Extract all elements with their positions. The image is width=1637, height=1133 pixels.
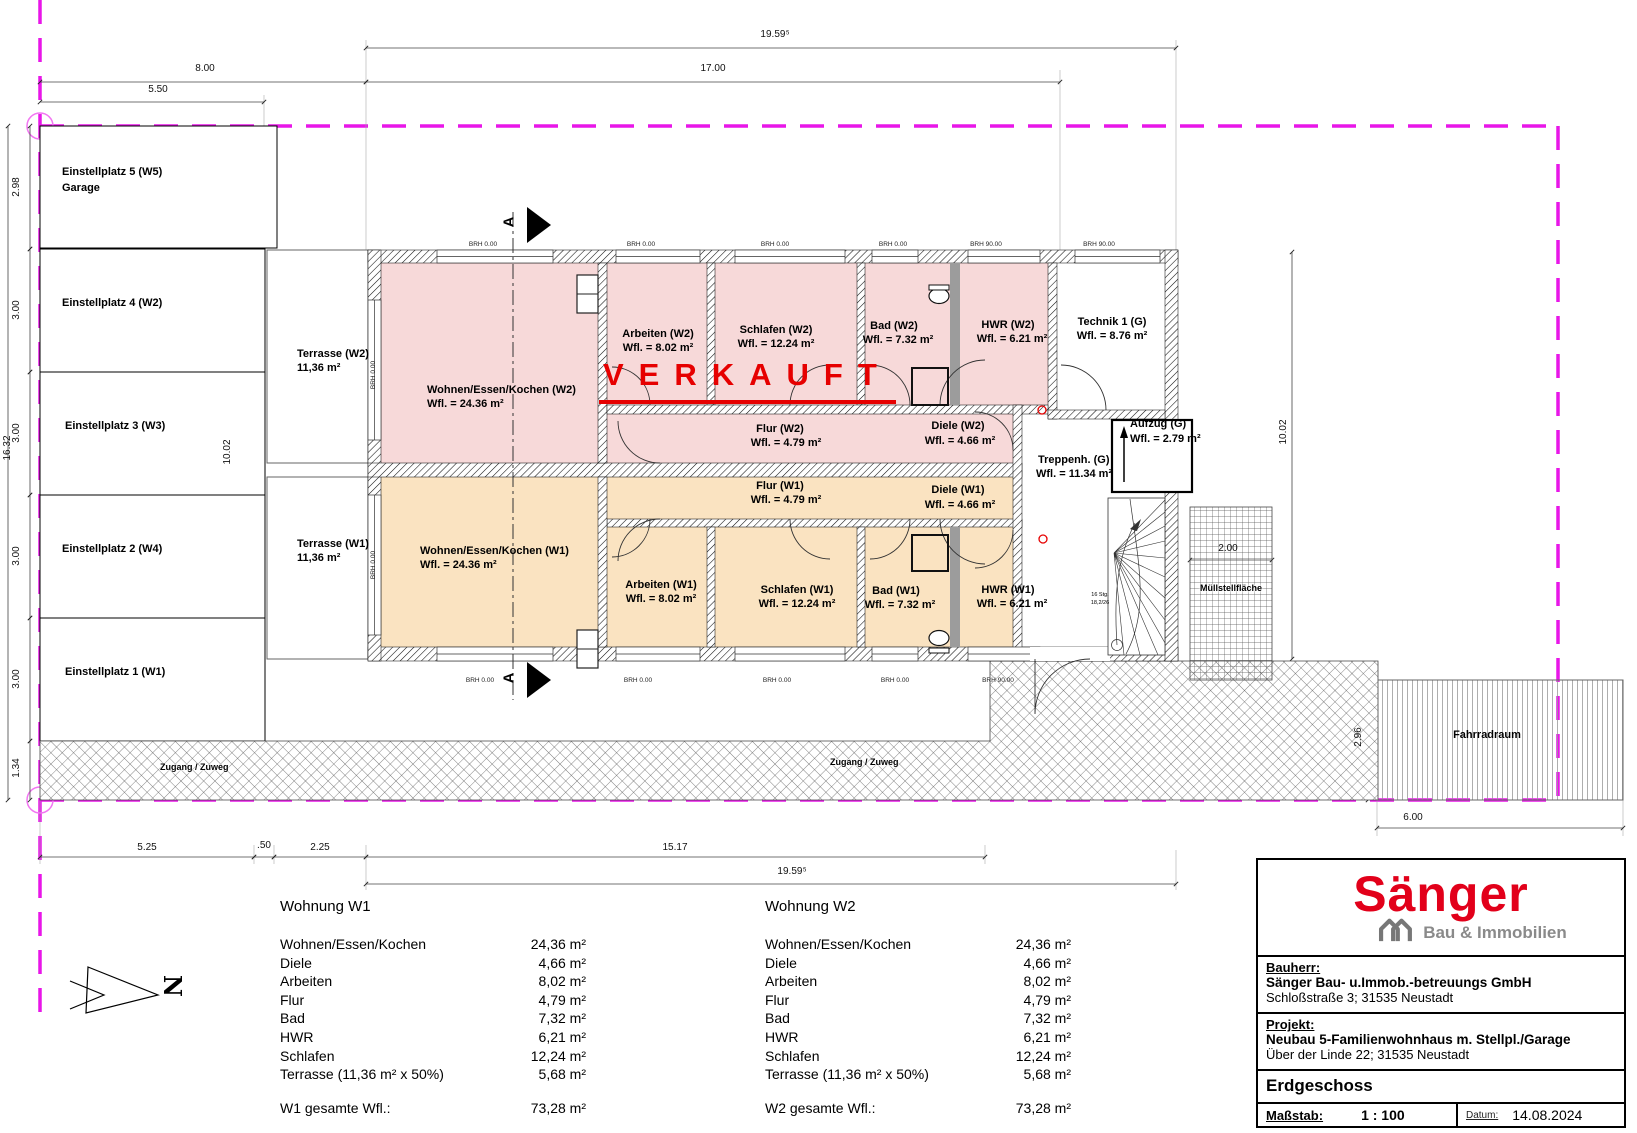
label-annotations-brh0: BRH 0.00: [469, 242, 497, 249]
table-row: Flur4,79 m²: [280, 992, 586, 1011]
table-row: Bad7,32 m²: [280, 1010, 586, 1029]
scale-cell: Maßstab: 1 : 100: [1258, 1104, 1456, 1126]
row-value: 24,36 m²: [1016, 936, 1071, 955]
toilet-w2: [929, 289, 949, 304]
row-value: 6,21 m²: [539, 1029, 586, 1048]
row-label: Schlafen: [280, 1048, 334, 1067]
row-value: 7,32 m²: [1024, 1010, 1071, 1029]
label-annotations-brh90: BRH 90.00: [970, 242, 1002, 249]
row-label: HWR: [280, 1029, 313, 1048]
label-annotations-section: A: [502, 673, 517, 684]
label-dims-d1002: 10.02: [223, 439, 233, 464]
titleblock: Sänger Bau & Immobilien Bauherr: Sänger …: [1256, 858, 1626, 1128]
date-label: Datum:: [1466, 1110, 1498, 1121]
label-dims-d17: 17.00: [700, 64, 725, 74]
label-rooms-aufzug-area: Wfl. = 2.79 m²: [1130, 434, 1201, 445]
label-dims-d1959: 19.59⁵: [760, 30, 789, 40]
total-value: 73,28 m²: [531, 1100, 586, 1116]
label-rooms-flur_w2-area: Wfl. = 4.79 m²: [751, 438, 822, 449]
row-value: 4,79 m²: [1024, 992, 1071, 1011]
row-value: 24,36 m²: [531, 936, 586, 955]
total-label: W1 gesamte Wfl.:: [280, 1100, 390, 1116]
label-rooms-schlafen_w2-name: Schlafen (W2): [740, 325, 813, 336]
label-site-walkway2: Zugang / Zuweg: [830, 758, 899, 767]
label-dims-d134: 1.34: [12, 758, 22, 777]
row-value: 5,68 m²: [1024, 1066, 1071, 1085]
row-value: 8,02 m²: [539, 973, 586, 992]
label-annotations-brh90: BRH 90.00: [1083, 242, 1115, 249]
titleblock-projekt: Projekt: Neubau 5-Familienwohnhaus m. St…: [1258, 1012, 1624, 1069]
label-dims-d525: 5.25: [137, 843, 156, 853]
label-dims-d550: 5.50: [148, 85, 167, 95]
row-label: Flur: [280, 992, 304, 1011]
table-total-row: W2 gesamte Wfl.:73,28 m²: [765, 1100, 1071, 1116]
label-annotations-brh0: BRH 0.00: [881, 678, 909, 685]
row-label: Terrasse (11,36 m² x 50%): [765, 1066, 929, 1085]
table-row: Diele4,66 m²: [765, 955, 1071, 974]
projekt-name: Neubau 5-Familienwohnhaus m. Stellpl./Ga…: [1266, 1032, 1616, 1047]
table-title-w1: Wohnung W1: [280, 898, 586, 915]
section-marker-top: [527, 207, 551, 243]
row-label: Arbeiten: [765, 973, 817, 992]
row-label: Wohnen/Essen/Kochen: [280, 936, 426, 955]
label-site-stalls-2-line1: Einstellplatz 3 (W3): [65, 421, 165, 432]
label-rooms-diele_w1-name: Diele (W1): [931, 485, 984, 496]
terraces: [267, 250, 368, 659]
label-site-walkway1: Zugang / Zuweg: [160, 763, 229, 772]
table-title-w2: Wohnung W2: [765, 898, 1071, 915]
label-dims-d296: 2.96: [1354, 727, 1364, 746]
date-cell: Datum: 14.08.2024: [1456, 1104, 1624, 1126]
label-annotations-brh0: BRH 0.00: [763, 678, 791, 685]
label-annotations-brh0: BRH 0.00: [371, 551, 378, 579]
section-marker-bottom: [527, 662, 551, 698]
label-rooms-schlafen_w1-name: Schlafen (W1): [761, 585, 834, 596]
logo-text: Sänger: [1353, 872, 1529, 917]
bauherr-name: Sänger Bau- u.Immob.-betreuungs GmbH: [1266, 975, 1616, 990]
bauherr-label: Bauherr:: [1266, 960, 1616, 975]
row-label: Wohnen/Essen/Kochen: [765, 936, 911, 955]
label-annotations-brh0: BRH 0.00: [879, 242, 907, 249]
table-wohnung-w1: Wohnung W1Wohnen/Essen/Kochen24,36 m²Die…: [280, 898, 586, 1116]
titleblock-bauherr: Bauherr: Sänger Bau- u.Immob.-betreuungs…: [1258, 955, 1624, 1012]
company-logo: Sänger Bau & Immobilien: [1258, 860, 1624, 955]
label-rooms-arbeiten_w1-area: Wfl. = 8.02 m²: [626, 594, 697, 605]
floor-title: Erdgeschoss: [1258, 1069, 1624, 1102]
label-rooms-terrasse_w2-area: 11,36 m²: [297, 363, 340, 374]
label-dims-d225: 2.25: [310, 843, 329, 853]
table-row: Diele4,66 m²: [280, 955, 586, 974]
row-value: 4,66 m²: [539, 955, 586, 974]
label-rooms-diele_w2-area: Wfl. = 4.66 m²: [925, 436, 996, 447]
label-rooms-terrasse_w2-name: Terrasse (W2): [297, 349, 369, 360]
elevator-shaft: [1112, 420, 1192, 492]
label-rooms-diele_w1-area: Wfl. = 4.66 m²: [925, 500, 996, 511]
row-value: 4,66 m²: [1024, 955, 1071, 974]
date-value: 14.08.2024: [1512, 1107, 1582, 1123]
label-site-north_label: N: [160, 975, 184, 997]
table-row: HWR6,21 m²: [280, 1029, 586, 1048]
label-rooms-treppenhaus-name: Treppenh. (G): [1038, 455, 1110, 466]
label-rooms-wek_w2-name: Wohnen/Essen/Kochen (W2): [427, 385, 576, 396]
table-row: Arbeiten8,02 m²: [765, 973, 1071, 992]
verkauft-stamp: VERKAUFT: [599, 357, 896, 404]
label-site-stalls-3-line1: Einstellplatz 2 (W4): [62, 544, 162, 555]
row-value: 7,32 m²: [539, 1010, 586, 1029]
table-row: HWR6,21 m²: [765, 1029, 1071, 1048]
total-value: 73,28 m²: [1016, 1100, 1071, 1116]
row-value: 12,24 m²: [531, 1048, 586, 1067]
scale-label: Maßstab:: [1266, 1108, 1323, 1123]
label-rooms-hwr_w2-name: HWR (W2): [981, 320, 1034, 331]
row-value: 12,24 m²: [1016, 1048, 1071, 1067]
table-row: Bad7,32 m²: [765, 1010, 1071, 1029]
label-rooms-bad_w1-name: Bad (W1): [872, 586, 920, 597]
label-rooms-hwr_w2-area: Wfl. = 6.21 m²: [977, 334, 1048, 345]
row-value: 6,21 m²: [1024, 1029, 1071, 1048]
row-value: 8,02 m²: [1024, 973, 1071, 992]
label-annotations-brh0: BRH 0.00: [371, 361, 378, 389]
table-row: Flur4,79 m²: [765, 992, 1071, 1011]
label-rooms-wek_w1-area: Wfl. = 24.36 m²: [420, 560, 497, 571]
label-site-muell: Müllstellfläche: [1200, 584, 1262, 593]
label-rooms-bad_w2-area: Wfl. = 7.32 m²: [863, 335, 934, 346]
table-row: Schlafen12,24 m²: [765, 1048, 1071, 1067]
label-dims-d300: 3.00: [12, 300, 22, 319]
label-annotations-brh0: BRH 0.00: [624, 678, 652, 685]
label-rooms-bad_w1-area: Wfl. = 7.32 m²: [865, 600, 936, 611]
label-annotations-stair2: 18,2/26: [1091, 601, 1109, 607]
label-rooms-arbeiten_w2-name: Arbeiten (W2): [622, 329, 694, 340]
label-annotations-brh0: BRH 0.00: [627, 242, 655, 249]
label-rooms-arbeiten_w1-name: Arbeiten (W1): [625, 580, 697, 591]
north-arrow-icon: [70, 967, 158, 1013]
bauherr-address: Schloßstraße 3; 31535 Neustadt: [1266, 990, 1616, 1005]
label-site-stalls-4-line1: Einstellplatz 1 (W1): [65, 667, 165, 678]
label-site-fahrrad: Fahrradraum: [1453, 730, 1521, 741]
label-dims-d200: 2.00: [1218, 544, 1237, 554]
label-rooms-schlafen_w2-area: Wfl. = 12.24 m²: [738, 339, 815, 350]
label-dims-d298: 2.98: [12, 177, 22, 196]
label-rooms-hwr_w1-name: HWR (W1): [981, 585, 1034, 596]
scale-value: 1 : 100: [1361, 1107, 1405, 1123]
floorplan-page: .dl{stroke:#444;stroke-width:.8;marker-s…: [0, 0, 1637, 1133]
label-annotations-brh0: BRH 0.00: [761, 242, 789, 249]
projekt-label: Projekt:: [1266, 1017, 1616, 1032]
table-wohnung-w2: Wohnung W2Wohnen/Essen/Kochen24,36 m²Die…: [765, 898, 1071, 1116]
label-rooms-wek_w2-area: Wfl. = 24.36 m²: [427, 399, 504, 410]
row-label: Bad: [765, 1010, 790, 1029]
table-total-row: W1 gesamte Wfl.:73,28 m²: [280, 1100, 586, 1116]
label-rooms-terrasse_w1-area: 11,36 m²: [297, 553, 340, 564]
label-rooms-schlafen_w1-area: Wfl. = 12.24 m²: [759, 599, 836, 610]
row-label: Schlafen: [765, 1048, 819, 1067]
label-annotations-stair1: 16 Stg.: [1091, 593, 1108, 599]
house-icon: [1375, 917, 1415, 943]
label-rooms-flur_w1-area: Wfl. = 4.79 m²: [751, 495, 822, 506]
label-rooms-bad_w2-name: Bad (W2): [870, 321, 918, 332]
label-dims-d050: .50: [257, 841, 271, 851]
label-dims-d1002: 10.02: [1279, 419, 1289, 444]
parking-stalls: [40, 126, 277, 741]
staircase: [1108, 498, 1165, 655]
label-site-stalls-0-line1: Einstellplatz 5 (W5): [62, 167, 162, 178]
label-dims-d300: 3.00: [12, 669, 22, 688]
label-rooms-diele_w2-name: Diele (W2): [931, 421, 984, 432]
label-rooms-aufzug-name: Aufzug (G): [1130, 419, 1186, 430]
table-row: Wohnen/Essen/Kochen24,36 m²: [765, 936, 1071, 955]
projekt-address: Über der Linde 22; 31535 Neustadt: [1266, 1047, 1616, 1062]
total-label: W2 gesamte Wfl.:: [765, 1100, 875, 1116]
logo-subtitle: Bau & Immobilien: [1423, 923, 1567, 943]
table-row: Terrasse (11,36 m² x 50%)5,68 m²: [280, 1066, 586, 1085]
entrance-opening: [1030, 647, 1110, 661]
row-value: 5,68 m²: [539, 1066, 586, 1085]
label-rooms-flur_w1-name: Flur (W1): [756, 481, 804, 492]
label-dims-d1517: 15.17: [662, 843, 687, 853]
toilet-w1: [929, 631, 949, 646]
row-label: Terrasse (11,36 m² x 50%): [280, 1066, 444, 1085]
label-site-stalls-0-line2: Garage: [62, 183, 100, 194]
label-rooms-treppenhaus-area: Wfl. = 11.34 m²: [1036, 469, 1112, 480]
table-row: Wohnen/Essen/Kochen24,36 m²: [280, 936, 586, 955]
label-rooms-wek_w1-name: Wohnen/Essen/Kochen (W1): [420, 546, 569, 557]
label-rooms-terrasse_w1-name: Terrasse (W1): [297, 539, 369, 550]
label-rooms-flur_w2-name: Flur (W2): [756, 424, 804, 435]
label-dims-d600: 6.00: [1403, 813, 1422, 823]
label-annotations-brh90: BRH 90.00: [982, 678, 1014, 685]
table-row: Schlafen12,24 m²: [280, 1048, 586, 1067]
label-annotations-section: A: [502, 217, 517, 228]
row-label: Flur: [765, 992, 789, 1011]
table-row: Terrasse (11,36 m² x 50%)5,68 m²: [765, 1066, 1071, 1085]
row-value: 4,79 m²: [539, 992, 586, 1011]
muellstellflaeche-area: [1190, 507, 1272, 680]
row-label: Diele: [280, 955, 312, 974]
label-rooms-technik-name: Technik 1 (G): [1078, 317, 1147, 328]
label-rooms-technik-area: Wfl. = 8.76 m²: [1077, 331, 1148, 342]
label-site-stalls-1-line1: Einstellplatz 4 (W2): [62, 298, 162, 309]
row-label: Diele: [765, 955, 797, 974]
label-rooms-hwr_w1-area: Wfl. = 6.21 m²: [977, 599, 1048, 610]
table-row: Arbeiten8,02 m²: [280, 973, 586, 992]
label-annotations-brh0: BRH 0.00: [466, 678, 494, 685]
label-dims-d1959: 19.59⁵: [777, 867, 806, 877]
label-rooms-arbeiten_w2-area: Wfl. = 8.02 m²: [623, 343, 694, 354]
label-dims-d8: 8.00: [195, 64, 214, 74]
label-dims-d300: 3.00: [12, 546, 22, 565]
row-label: Arbeiten: [280, 973, 332, 992]
row-label: Bad: [280, 1010, 305, 1029]
row-label: HWR: [765, 1029, 798, 1048]
label-dims-d300: 3.00: [12, 423, 22, 442]
